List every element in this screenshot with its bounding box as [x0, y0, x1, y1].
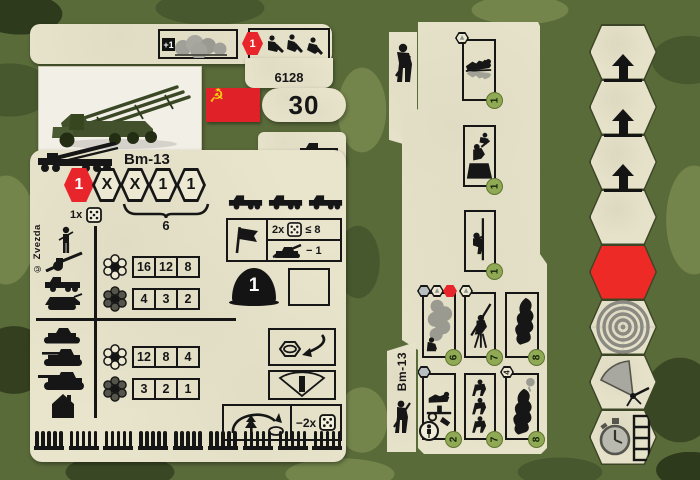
- hex-fill: [419, 287, 430, 296]
- badge-value: 8: [531, 355, 542, 361]
- soviet-flag: ★ ☭: [206, 88, 260, 122]
- attack-value: 1: [176, 378, 200, 400]
- range-brace: [122, 203, 210, 218]
- bullet-icon: [192, 431, 196, 446]
- ammo-track: [35, 426, 341, 450]
- bullet-icon: [59, 431, 63, 446]
- single-hex-blast-icon: [102, 254, 128, 280]
- figure-box-walkers: [464, 373, 496, 440]
- hex-fill: [419, 368, 430, 377]
- fire-arc-icon: [270, 372, 334, 398]
- bullet-icon: [139, 431, 143, 446]
- attack-value: 4: [176, 346, 200, 368]
- prone-soldier-silhouette: [464, 41, 494, 99]
- bullet-icon: [41, 431, 45, 446]
- copyright: © Zvezda: [32, 188, 43, 274]
- attack-values-row: 16 12 8: [132, 256, 200, 278]
- bullet-icon: [70, 431, 74, 446]
- bullet-icon: [76, 431, 80, 446]
- bullet-icon: [233, 431, 237, 446]
- ammo-group: [139, 431, 167, 450]
- fire-arc-order-hex: [589, 354, 657, 410]
- hammer-sickle-icon: ☭: [209, 89, 224, 106]
- bullet-icon: [47, 431, 51, 446]
- heavy-tank-icon: [38, 368, 86, 390]
- crossed-tank-icon: [272, 243, 302, 259]
- bullet-icon: [129, 431, 133, 446]
- figure-count-badge: 8: [528, 431, 545, 448]
- arrow-stem: [619, 66, 628, 80]
- figure-count-badge: 8: [528, 349, 545, 366]
- arrow-stem: [619, 176, 628, 190]
- building-icon: [50, 392, 76, 418]
- order-hex-strip: [589, 20, 659, 476]
- attack-value: 16: [132, 256, 156, 278]
- digging-soldiers-icon: [264, 32, 326, 58]
- rally-flag-cell: [228, 220, 268, 260]
- attack-value: 2: [154, 378, 178, 400]
- bullet-icon: [303, 431, 307, 446]
- bullet-icon: [279, 431, 283, 446]
- entrench-hex-badge: 1: [242, 32, 263, 55]
- figure-count-badge: 1: [486, 263, 503, 280]
- table-divider-horizontal: [36, 318, 236, 321]
- bullet-icon: [262, 431, 266, 446]
- range-value: 6: [122, 218, 210, 233]
- bullet-icon: [244, 431, 248, 446]
- arrow-head-icon: [612, 109, 634, 121]
- attack-value: 8: [154, 346, 178, 368]
- bullet-icon: [151, 431, 155, 446]
- stat-hex-value: X: [130, 176, 141, 194]
- stat-hex-move: 1: [64, 168, 94, 202]
- arrow-head-icon: [612, 164, 634, 176]
- smoke-and-crew-silhouette: [424, 294, 454, 356]
- bullet-icon: [88, 431, 92, 446]
- product-code: 6128: [275, 70, 304, 85]
- points-value: 30: [289, 90, 320, 121]
- bullet-icon: [94, 431, 98, 446]
- truck-icon: [44, 272, 82, 294]
- attack-value: 2: [176, 288, 200, 310]
- badge-value: 2: [448, 437, 459, 443]
- entrench-count: 1: [249, 38, 255, 50]
- bullet-icon: [198, 431, 202, 446]
- move-arrow-marker: [604, 164, 642, 194]
- salvo-label: 1x: [70, 209, 82, 221]
- bullet-icon: [221, 431, 225, 446]
- parts-silhouette: [507, 375, 537, 438]
- artillery-icon: [44, 250, 84, 272]
- walking-soldiers-silhouette: [466, 375, 494, 438]
- concealment-bonus: +1: [163, 40, 173, 50]
- truck-icon: [228, 190, 264, 212]
- die-icon: [86, 207, 102, 223]
- bullet-icon: [163, 431, 167, 446]
- hex-fill: [591, 246, 656, 299]
- bullet-icon: [117, 431, 121, 446]
- junction-line: [604, 79, 642, 82]
- ammo-group: [70, 431, 98, 450]
- halftrack-icon: [42, 292, 84, 312]
- defense-helmet-icon: 1: [232, 268, 276, 304]
- attack-value: 3: [132, 378, 156, 400]
- ammo-group: [174, 431, 202, 450]
- target-reticle-icon: [589, 299, 657, 355]
- stat-hex-value: 1: [159, 176, 168, 194]
- stat-hex-5: 1: [176, 168, 206, 202]
- timer-order-hex: [589, 409, 657, 465]
- bullet-icon: [53, 431, 57, 446]
- bullet-icon: [180, 431, 184, 446]
- arrow-head-icon: [612, 54, 634, 66]
- figure-count-badge: 7: [486, 431, 503, 448]
- marker-square: [288, 268, 330, 306]
- badge-value: 8: [531, 437, 542, 443]
- stat-hex-value: 1: [75, 176, 84, 194]
- light-tank-icon: [42, 326, 82, 344]
- figure-count-badge: 2: [445, 431, 462, 448]
- stopwatch-icon: [589, 409, 657, 465]
- attack-value: 4: [132, 288, 156, 310]
- fire-arc-box: [268, 370, 336, 400]
- unit-name: Bm-13: [124, 151, 170, 168]
- attack-value: 3: [154, 288, 178, 310]
- mountain-icon: ▲: [464, 288, 469, 294]
- figure-box-parts: [505, 292, 539, 358]
- bullet-icon: [314, 431, 318, 446]
- bullet-icon: [35, 431, 39, 446]
- bullet-icon: [209, 431, 213, 446]
- arrow-stem: [619, 121, 628, 135]
- unit-stat-card: +1 1 6128: [30, 24, 346, 462]
- stat-hex-value: 1: [187, 176, 196, 194]
- entrench-box: 1: [248, 28, 330, 60]
- unit-name-vertical: Bm-13: [395, 352, 409, 391]
- figure-count-badge: 1: [486, 92, 503, 109]
- attack-value: 8: [176, 256, 200, 278]
- badge-value: 1: [489, 98, 500, 104]
- stat-hex-row: 1 X X 1 1: [66, 168, 226, 202]
- rotate-arrow-icon: [270, 330, 334, 364]
- bullet-icon: [82, 431, 86, 446]
- card-sheet: +1 1 6128: [0, 0, 700, 480]
- rally-dice-label: 2x: [272, 224, 284, 236]
- badge-value: 7: [489, 355, 500, 361]
- salvo-row: 1x: [70, 207, 102, 223]
- bullet-icon: [227, 431, 231, 446]
- target-order-hex: [589, 299, 657, 355]
- rifleman-silhouette: [391, 397, 413, 443]
- fire-order-hex: [589, 244, 657, 300]
- hex-fill: [445, 287, 456, 296]
- bullet-icon: [123, 431, 127, 446]
- ammo-group: [35, 431, 63, 450]
- rally-check-row: 2x ≤ 8: [268, 220, 340, 241]
- defense-value: 1: [249, 275, 260, 297]
- bullet-icon: [250, 431, 254, 446]
- unit-photo: [38, 66, 202, 154]
- aiming-soldier-silhouette: [466, 294, 494, 356]
- attack-values-row: 3 2 1: [132, 378, 200, 400]
- figure-box-aimer: [464, 292, 496, 358]
- parts-silhouette: [507, 294, 537, 356]
- stat-hex-2: X: [92, 168, 122, 202]
- mountain-icon: ▲: [435, 288, 440, 294]
- bullet-icon: [285, 431, 289, 446]
- truck-icon: [268, 190, 304, 212]
- product-code-tab: 6128: [245, 58, 333, 88]
- ammo-group: [105, 431, 133, 450]
- table-divider-vertical: [94, 226, 97, 418]
- bullet-icon: [291, 431, 295, 446]
- figure-count-badge: 1: [486, 178, 503, 195]
- crew-figure-badge: [419, 421, 439, 441]
- points-pill: 30: [262, 88, 346, 122]
- bullet-icon: [105, 431, 109, 446]
- ammo-group: [244, 431, 272, 450]
- attack-value: 12: [132, 346, 156, 368]
- bullet-icon: [338, 431, 342, 446]
- rally-threshold: ≤ 8: [305, 224, 320, 236]
- attack-value: 12: [154, 256, 178, 278]
- figure-count-badge: 6: [445, 349, 462, 366]
- assembly-card: ▲ 1 1: [375, 14, 575, 474]
- figure-box-smoke: [422, 292, 456, 358]
- bullet-icon: [268, 431, 272, 446]
- rammer-soldier-silhouette: [466, 212, 494, 270]
- concealment-bonus-badge: +1: [162, 38, 175, 51]
- badge-value: 1: [489, 184, 500, 190]
- bullet-icon: [320, 431, 324, 446]
- unit-label-box: Bm-13: [387, 342, 416, 452]
- artillery-arc-icon: [589, 354, 657, 410]
- ammo-group: [279, 431, 307, 450]
- concealment-box: +1: [158, 29, 238, 59]
- stat-panel: Bm-13 1 X X 1 1 1x 6: [30, 150, 346, 462]
- mountain-icon: ▲: [460, 35, 465, 41]
- bullet-icon: [297, 431, 301, 446]
- bullet-icon: [157, 431, 161, 446]
- stat-hex-value: X: [102, 176, 113, 194]
- truck-icon: [308, 190, 344, 212]
- medium-tank-icon: [40, 346, 84, 366]
- rally-penalty-row: − 1: [268, 241, 340, 260]
- junction-line: [604, 189, 642, 192]
- bullet-icon: [215, 431, 219, 446]
- hex-fill: [591, 191, 656, 244]
- flag-icon: [233, 224, 261, 256]
- area-blast-icon: [102, 286, 128, 312]
- blank-order-hex: [589, 189, 657, 245]
- junction-line: [604, 134, 642, 137]
- bullet-icon: [326, 431, 330, 446]
- bullet-icon: [174, 431, 178, 446]
- move-arrow-marker: [604, 54, 642, 84]
- stat-hex-3: X: [120, 168, 150, 202]
- attack-values-row: 4 3 2: [132, 288, 200, 310]
- bullet-icon: [256, 431, 260, 446]
- bm13-model-image: [39, 67, 199, 151]
- rotate-box: [268, 328, 336, 366]
- rally-box: 2x ≤ 8: [226, 218, 342, 262]
- rally-rules-cell: 2x ≤ 8: [268, 220, 340, 260]
- area-blast-icon: [102, 376, 128, 402]
- mini-figure-icon: [424, 424, 434, 438]
- loader-soldier-silhouette: [465, 127, 494, 185]
- move-arrow-marker: [604, 109, 642, 139]
- die-icon: [287, 222, 302, 237]
- rally-penalty: − 1: [306, 245, 322, 257]
- badge-value: 1: [489, 269, 500, 275]
- badge-value: 6: [448, 355, 459, 361]
- bullet-icon: [145, 431, 149, 446]
- badge-value: 7: [489, 437, 500, 443]
- single-hex-blast-icon: [102, 344, 128, 370]
- standing-figure-silhouette: [390, 40, 416, 104]
- bullet-icon: [186, 431, 190, 446]
- attack-values-row: 12 8 4: [132, 346, 200, 368]
- tow-trucks-row: [228, 190, 344, 212]
- ammo-group: [209, 431, 237, 450]
- figure-box-parts2: [505, 373, 539, 440]
- ammo-group: [314, 431, 342, 450]
- figure-count-badge: 7: [486, 349, 503, 366]
- bullet-icon: [332, 431, 336, 446]
- stat-hex-4: 1: [148, 168, 178, 202]
- hex-badge-value: 4: [502, 370, 511, 374]
- bullet-icon: [111, 431, 115, 446]
